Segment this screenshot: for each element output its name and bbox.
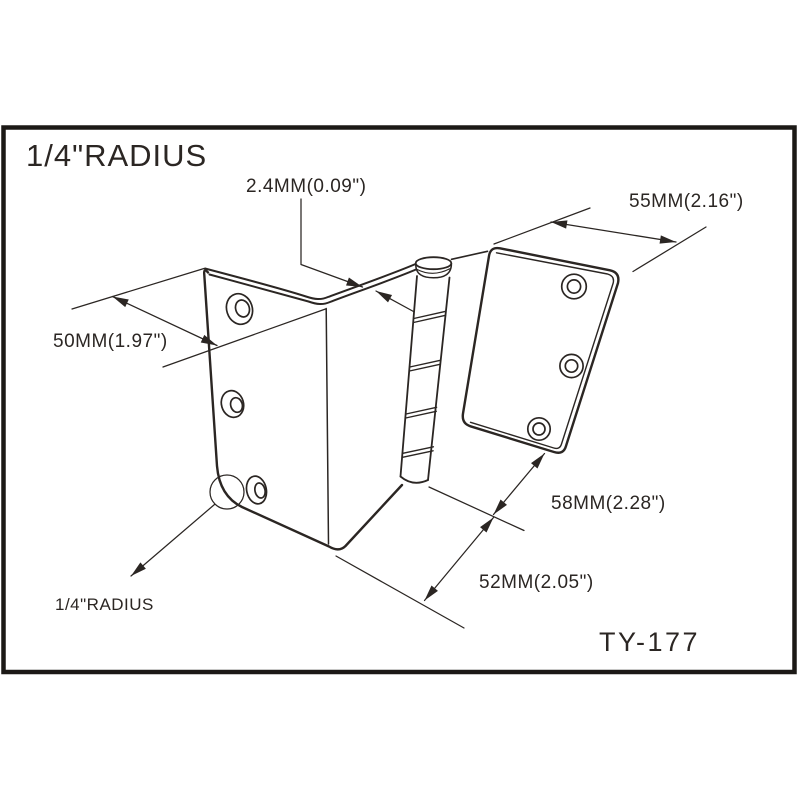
pin-cap bbox=[416, 257, 452, 278]
label-width-50: 50MM(1.97") bbox=[53, 332, 168, 351]
label-radius-bottom: 1/4"RADIUS bbox=[55, 596, 154, 613]
label-width-55: 55MM(2.16") bbox=[629, 192, 744, 211]
left-leaf-holes bbox=[218, 290, 269, 505]
dim-length-58mm bbox=[429, 454, 545, 531]
hinge-technical-drawing bbox=[0, 0, 800, 800]
label-thickness: 2.4MM(0.09") bbox=[246, 177, 366, 196]
label-length-58: 58MM(2.28") bbox=[551, 494, 666, 513]
radius-indicator-circle bbox=[210, 475, 244, 509]
label-radius-top: 1/4"RADIUS bbox=[26, 140, 207, 171]
drawing-sheet: 1/4"RADIUS 2.4MM(0.09") 55MM(2.16") 50MM… bbox=[0, 0, 800, 800]
right-leaf-holes bbox=[528, 274, 587, 440]
right-leaf bbox=[463, 248, 619, 453]
dim-length-52mm bbox=[336, 518, 494, 629]
label-part-number: TY-177 bbox=[599, 629, 700, 656]
label-length-52: 52MM(2.05") bbox=[479, 573, 594, 592]
dim-width-55mm bbox=[494, 208, 706, 272]
leader-radius-bottom bbox=[131, 505, 215, 577]
dim-thickness-2-4mm bbox=[301, 199, 414, 312]
hinge-pin-barrel bbox=[401, 251, 488, 482]
dim-width-50mm bbox=[72, 269, 326, 368]
left-leaf bbox=[204, 263, 420, 550]
